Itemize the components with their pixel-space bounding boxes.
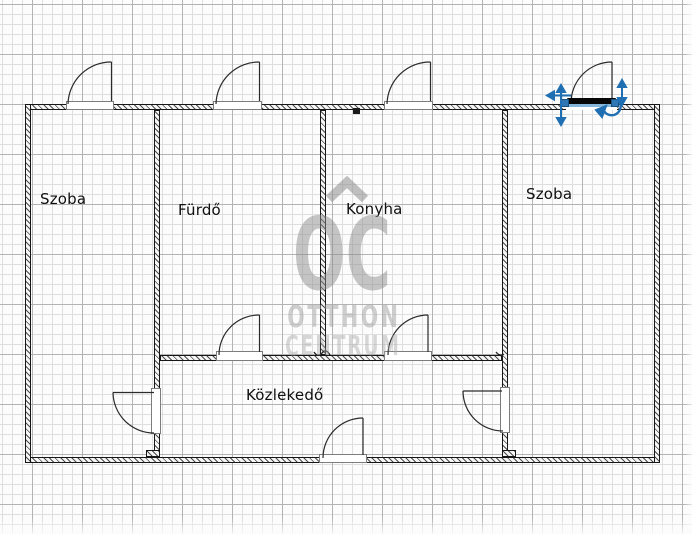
move-horizontal-arrow-left[interactable] <box>547 92 554 100</box>
canvas-edge-fade-bottom <box>0 518 692 534</box>
selection-handles <box>0 0 692 534</box>
canvas-edge-fade-right <box>684 0 692 534</box>
rotate-arrowhead[interactable] <box>596 106 606 117</box>
floorplan-canvas[interactable]: Szoba Fürdő Konyha Szoba Közlekedő OC OT… <box>0 0 692 534</box>
move-vertical-arrow-up[interactable] <box>557 85 565 92</box>
resize-vertical-arrow-up[interactable] <box>618 80 626 87</box>
move-vertical-arrow-down[interactable] <box>557 118 565 125</box>
